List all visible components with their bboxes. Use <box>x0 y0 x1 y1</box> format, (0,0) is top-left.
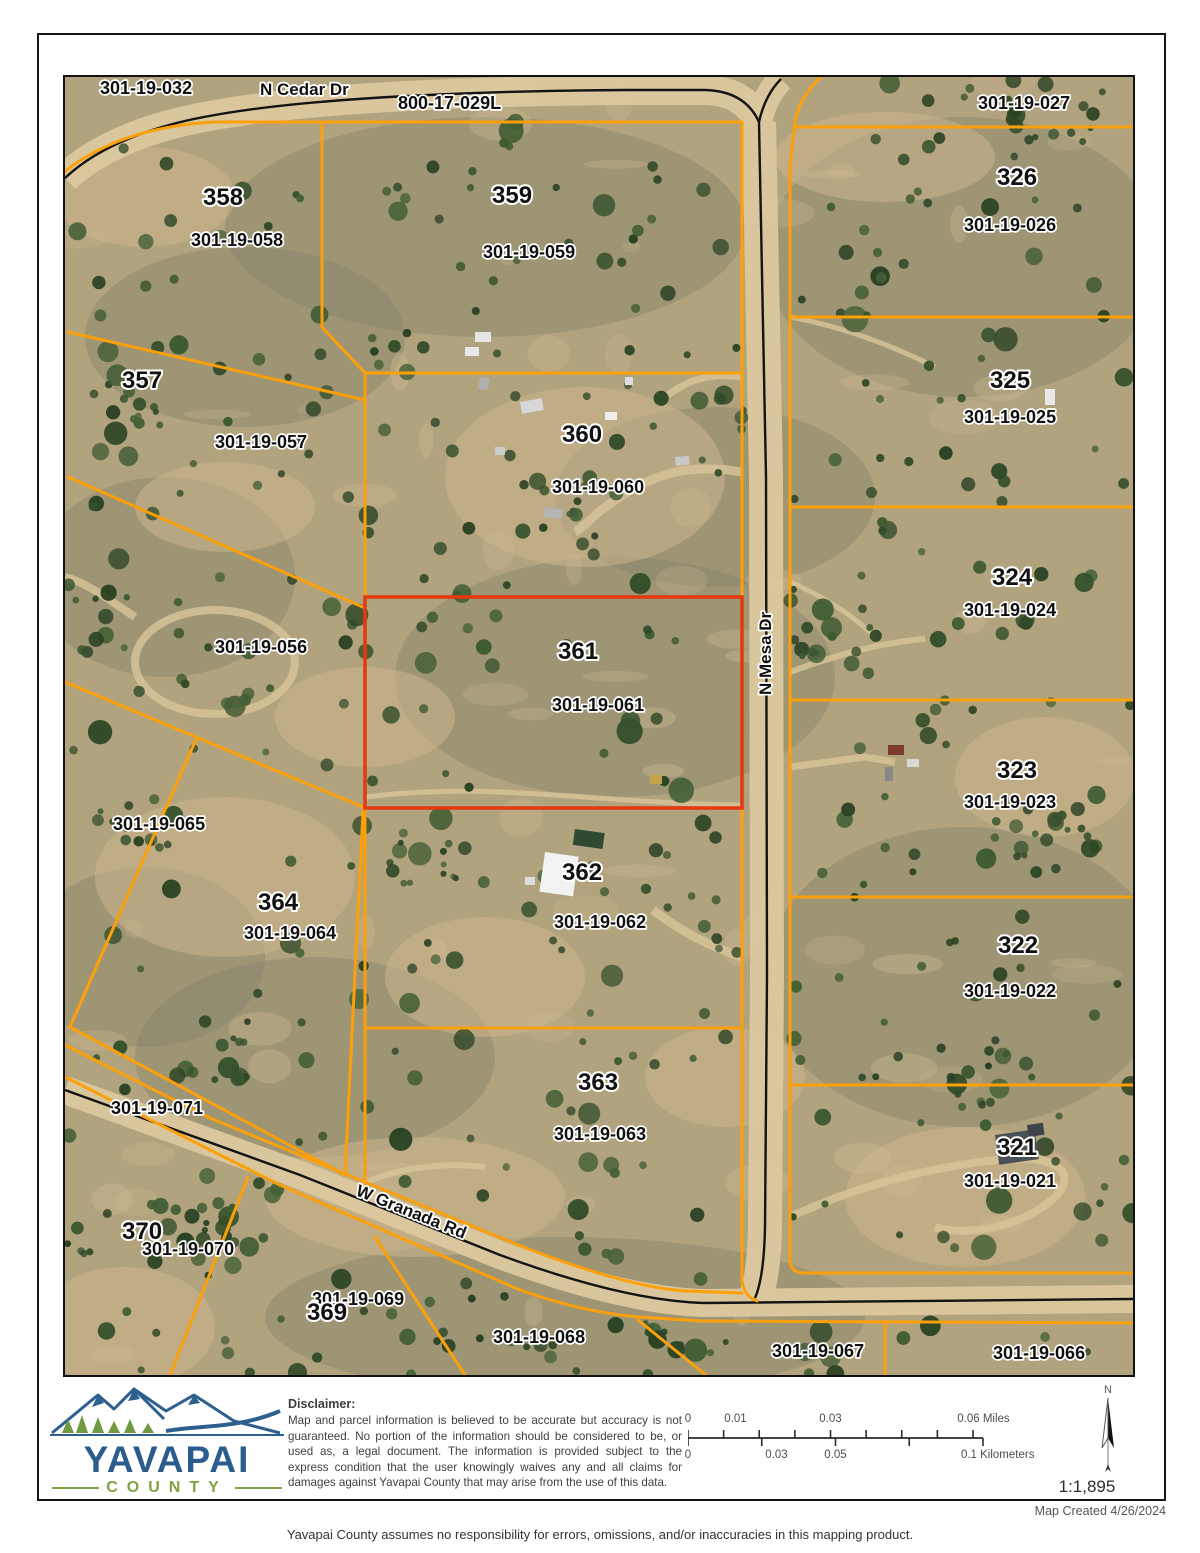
parcel-number-label: 326 <box>997 164 1037 191</box>
scale-miles-labels: 00.010.030.06 Miles <box>688 1413 998 1427</box>
road-label: N Cedar Dr <box>260 80 349 99</box>
parcel-apn-label: 301-19-022 <box>964 981 1056 1001</box>
parcel-apn-label: 301-19-023 <box>964 792 1056 812</box>
bottom-disclaimer: Yavapai County assumes no responsibility… <box>0 1527 1200 1542</box>
parcel-apn-label: 301-19-056 <box>215 637 307 657</box>
parcel-apn-label: 301-19-062 <box>554 912 646 932</box>
page: { "map": { "orange": "#fca00a", "highlig… <box>0 0 1200 1553</box>
parcel-apn-label: 301-19-032 <box>100 78 192 98</box>
parcel-number-label: 358 <box>203 184 243 211</box>
scale-tick-label: 0 <box>685 1449 691 1461</box>
logo-subtitle: COUNTY <box>48 1479 286 1497</box>
parcel-apn-label: 301-19-060 <box>552 477 644 497</box>
county-logo: YAVAPAI COUNTY <box>48 1385 286 1499</box>
scale-tick-label: 0.01 <box>724 1413 746 1425</box>
parcel-apn-label: 301-19-070 <box>142 1239 234 1259</box>
parcel-apn-label: 301-19-026 <box>964 215 1056 235</box>
scale-ratio: 1:1,895 <box>1032 1477 1142 1497</box>
parcel-apn-label: 301-19-024 <box>964 600 1056 620</box>
map-created-date: Map Created 4/26/2024 <box>1035 1504 1166 1518</box>
parcel-number-label: 363 <box>578 1069 618 1096</box>
scale-tick-label: 0.06 Miles <box>957 1413 1009 1425</box>
parcel-number-label: 324 <box>992 564 1033 591</box>
parcel-number-label: 361 <box>558 638 598 665</box>
parcel-number-label: 325 <box>990 367 1030 394</box>
parcel-apn-label: 301-19-065 <box>113 814 205 834</box>
parcel-number-label: 321 <box>997 1134 1037 1161</box>
north-arrow: N <box>1092 1384 1124 1481</box>
scale-tick-label: 0.03 <box>765 1449 787 1461</box>
parcel-apn-label: 800-17-029L <box>398 93 501 113</box>
parcel-apn-label: 301-19-058 <box>191 230 283 250</box>
scale-tick-label: 0.1 Kilometers <box>961 1449 1035 1461</box>
parcel-apn-label: 301-19-067 <box>772 1341 864 1361</box>
north-arrow-icon <box>1095 1396 1121 1476</box>
parcel-number-label: 360 <box>562 421 602 448</box>
parcel-apn-label: 301-19-066 <box>993 1343 1085 1363</box>
parcel-number-label: 362 <box>562 859 602 886</box>
scale-km-labels: 00.030.050.1 Kilometers <box>688 1449 998 1463</box>
parcel-apn-label: 301-19-027 <box>978 93 1070 113</box>
parcel-apn-label: 301-19-025 <box>964 407 1056 427</box>
parcel-apn-label: 301-19-064 <box>244 923 336 943</box>
map-frame: 301-19-032N Cedar Dr800-17-029L358301-19… <box>63 75 1135 1377</box>
parcel-number-label: 369 <box>307 1299 347 1326</box>
road-label: N Mesa Dr <box>756 611 775 695</box>
parcel-number-label: 359 <box>492 182 532 209</box>
logo-mountains-icon <box>48 1385 286 1437</box>
scale-tick-label: 0.05 <box>824 1449 846 1461</box>
parcel-apn-label: 301-19-063 <box>554 1124 646 1144</box>
parcel-apn-label: 301-19-057 <box>215 432 307 452</box>
map-canvas: 301-19-032N Cedar Dr800-17-029L358301-19… <box>65 77 1133 1375</box>
disclaimer-block: Disclaimer: Map and parcel information i… <box>288 1397 682 1491</box>
parcel-apn-label: 301-19-061 <box>552 695 644 715</box>
scale-tick-label: 0 <box>685 1413 691 1425</box>
parcel-number-label: 364 <box>258 889 299 916</box>
parcel-number-label: 323 <box>997 757 1037 784</box>
disclaimer-text: Map and parcel information is believed t… <box>288 1413 682 1491</box>
logo-title: YAVAPAI <box>48 1442 286 1477</box>
parcel-apn-label: 301-19-068 <box>493 1327 585 1347</box>
parcel-number-label: 322 <box>998 932 1038 959</box>
parcel-apn-label: 301-19-071 <box>111 1098 203 1118</box>
north-label: N <box>1092 1384 1124 1396</box>
scale-tick-label: 0.03 <box>819 1413 841 1425</box>
scale-bar-line <box>688 1428 998 1448</box>
disclaimer-title: Disclaimer: <box>288 1397 682 1411</box>
parcel-number-label: 357 <box>122 367 162 394</box>
scale-bar: 00.010.030.06 Miles 00.030.050.1 Kilomet… <box>688 1413 998 1475</box>
parcel-apn-label: 301-19-059 <box>483 242 575 262</box>
parcel-apn-label: 301-19-021 <box>964 1171 1056 1191</box>
